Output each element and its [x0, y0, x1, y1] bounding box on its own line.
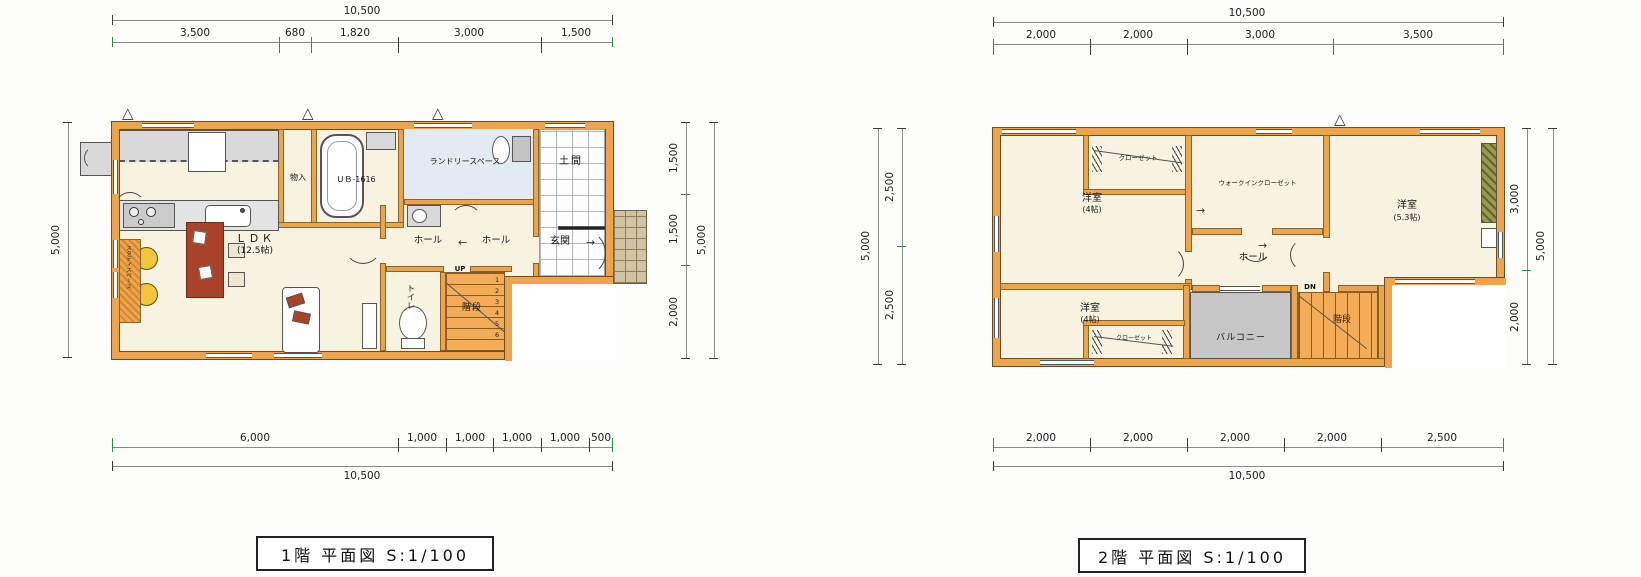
window: [113, 240, 118, 268]
dim-label: 2,000: [1114, 432, 1162, 444]
dim-tick: [112, 15, 113, 25]
balcony-floor: [1190, 292, 1291, 359]
dim-tick: [681, 265, 690, 266]
dim-tick: [1503, 461, 1504, 471]
dim-label: 10,500: [1180, 7, 1314, 19]
bedroom-nw-label: 洋室: [1062, 193, 1122, 204]
washbasin: [412, 209, 427, 223]
dim-tick: [681, 194, 690, 195]
closet-label: クローゼット: [1098, 155, 1178, 162]
dim-label: 10,500: [295, 5, 429, 17]
bedroom-e-size: (5.3帖): [1372, 214, 1442, 223]
dim-label: 10,500: [295, 470, 429, 482]
dim-label: 2,000: [1017, 432, 1065, 444]
place-setting: [198, 265, 213, 280]
dim-line: [112, 466, 613, 467]
wall-segment: [380, 263, 386, 351]
dim-tick: [993, 39, 994, 55]
dim-tick: [63, 357, 72, 358]
door-swing-arc: [1290, 238, 1324, 272]
dim-tick: [709, 358, 718, 359]
wall-segment: [533, 129, 539, 237]
wall-segment: [380, 205, 386, 239]
wall-segment: [1192, 228, 1242, 235]
dim-line: [1553, 128, 1554, 365]
chair: [228, 272, 245, 287]
floor2-notch: [1385, 278, 1506, 368]
laundry-label: ランドリースペース: [406, 158, 524, 167]
arrow-right-icon: →: [586, 237, 595, 248]
wall-segment: [398, 129, 404, 228]
roof-vent-icon: △: [432, 106, 444, 121]
dim-label: 1,500: [668, 204, 680, 254]
door-swing-arc: [344, 226, 382, 264]
window: [1420, 129, 1480, 134]
storage-label: 物入: [281, 174, 315, 183]
dim-tick: [993, 461, 994, 471]
dim-tick: [897, 246, 906, 247]
ldk-size-label: (12.5帖): [215, 247, 295, 257]
dim-label: 1,000: [446, 432, 494, 444]
arrow-right-icon: →: [1196, 205, 1205, 216]
dim-label: 5,000: [50, 215, 62, 265]
study-label: スタディスペース: [124, 245, 132, 289]
dim-label: 3,000: [1509, 174, 1521, 224]
kitchen-island: [188, 132, 226, 172]
window: [113, 160, 118, 194]
dim-tick: [681, 122, 690, 123]
dim-line: [686, 122, 687, 359]
dim-tick: [1522, 364, 1531, 365]
bath-counter: [366, 132, 396, 150]
stairs-label: 階段: [450, 304, 494, 314]
window: [1256, 129, 1292, 134]
dim-tick: [897, 128, 906, 129]
roof-vent-icon: △: [302, 106, 314, 121]
stairs-label: 階段: [1322, 316, 1362, 326]
dim-tick: [1381, 438, 1382, 452]
window: [1002, 129, 1076, 134]
floorplan-sheet: { "palette": { "wall": "#eda44f", "floor…: [0, 0, 1641, 577]
dim-label: 2,500: [884, 162, 896, 212]
closet-label: クローゼット: [1096, 336, 1172, 343]
dim-line: [714, 122, 715, 359]
step-number: 1: [495, 276, 499, 284]
floor1-title-text: 1階 平面図 S:1/100: [281, 542, 469, 566]
up-label: UP: [450, 266, 470, 274]
wall-segment: [1272, 228, 1323, 235]
faucet: [240, 208, 245, 213]
ldk-label: ＬＤＫ: [215, 233, 295, 245]
dim-tick: [681, 358, 690, 359]
dim-line: [112, 20, 613, 21]
arrow-left-icon: ←: [458, 237, 467, 248]
wall-segment: [470, 266, 512, 272]
dn-label: DN: [1300, 284, 1320, 292]
wall-segment: [386, 266, 444, 272]
dim-tick: [612, 15, 613, 25]
roof-vent-icon: △: [122, 106, 134, 121]
dim-tick: [709, 122, 718, 123]
dim-tick: [612, 461, 613, 471]
window-seat: [1481, 228, 1497, 248]
window: [1395, 279, 1475, 284]
step-number: 4: [495, 309, 499, 317]
window: [994, 298, 999, 338]
wic-label: ウォークインクローゼット: [1190, 180, 1325, 187]
dim-label: 2,500: [1399, 432, 1485, 444]
window: [206, 353, 252, 358]
step-number: 5: [495, 320, 499, 328]
wall-segment: [1083, 135, 1089, 195]
window: [994, 216, 999, 252]
hall-label: ホール: [1228, 253, 1278, 263]
bedroom-sw-size: (4帖): [1060, 316, 1120, 325]
floor2-title-text: 2階 平面図 S:1/100: [1098, 544, 1286, 568]
dim-label: 3,000: [1217, 29, 1303, 41]
dim-label: 2,000: [668, 287, 680, 337]
dim-line: [993, 466, 1504, 467]
dim-label: 10,500: [1180, 470, 1314, 482]
dim-tick: [897, 364, 906, 365]
dim-label: 2,500: [884, 280, 896, 330]
dim-tick: [1503, 17, 1504, 27]
dim-line: [112, 447, 613, 448]
wall-segment: [1192, 285, 1220, 292]
dim-tick: [279, 37, 280, 53]
dim-label: 1,000: [493, 432, 541, 444]
wall-segment: [440, 272, 446, 351]
dim-line: [68, 122, 69, 358]
dim-tick: [541, 37, 542, 53]
window: [274, 353, 322, 358]
dim-tick: [873, 128, 882, 129]
dim-tick: [993, 17, 994, 27]
window: [142, 123, 194, 128]
dim-tick: [311, 37, 312, 53]
dim-tick: [1548, 128, 1557, 129]
dim-tick: [1187, 39, 1188, 55]
dim-tick: [1090, 39, 1091, 55]
tv-board: [362, 303, 377, 349]
floor1-notch: [505, 277, 615, 361]
dim-label: 2,000: [1114, 29, 1162, 41]
bedroom-e-label: 洋室: [1372, 200, 1442, 211]
balcony-door: [1220, 286, 1260, 291]
dim-line: [993, 44, 1504, 45]
bedroom-sw-label: 洋室: [1060, 303, 1120, 314]
dim-tick: [398, 37, 399, 53]
hall-label: ホール: [402, 236, 454, 246]
dim-label: 1,500: [533, 27, 619, 39]
wall-segment: [1323, 272, 1330, 292]
toilet-label: トイレ: [404, 284, 416, 310]
dim-tick: [1187, 438, 1188, 452]
dim-tick: [1522, 270, 1531, 271]
dim-label: 2,000: [1017, 29, 1065, 41]
dim-tick: [1522, 128, 1531, 129]
dim-label: 3,000: [426, 27, 512, 39]
dim-tick: [1284, 438, 1285, 452]
door-swing-arc: [114, 192, 146, 224]
entrance-porch: [613, 210, 647, 284]
wall-segment: [1185, 135, 1192, 252]
window: [113, 272, 118, 298]
dim-label: 5,000: [860, 221, 872, 271]
dim-label: 500: [585, 432, 617, 444]
dim-label: 3,500: [152, 27, 238, 39]
window: [1040, 360, 1094, 365]
dim-tick: [993, 438, 994, 452]
bath-label: ＵＢ-1616: [316, 176, 396, 185]
bedroom-closet-hatch: [1481, 143, 1497, 223]
dim-tick: [112, 461, 113, 471]
wall-segment: [1291, 285, 1298, 359]
doma-label: 土間: [541, 156, 601, 167]
window: [414, 123, 472, 128]
dim-tick: [1548, 364, 1557, 365]
dim-label: 6,000: [210, 432, 300, 444]
wall-segment: [1000, 283, 1192, 290]
dim-tick: [112, 438, 113, 452]
dim-tick: [112, 37, 113, 47]
dim-tick: [63, 122, 72, 123]
floor2-title: 2階 平面図 S:1/100: [1078, 538, 1306, 573]
door-swing-arc: [450, 205, 482, 237]
bedroom-nw-size: (4帖): [1062, 206, 1122, 215]
door-swing-arc: [1148, 246, 1184, 282]
wall-segment: [1338, 285, 1378, 292]
dim-line: [993, 22, 1504, 23]
balcony-label: バルコニー: [1196, 334, 1286, 344]
window: [545, 123, 585, 128]
dim-label: 1,500: [668, 133, 680, 183]
entry-label: 玄関: [537, 236, 583, 247]
dim-line: [1527, 128, 1528, 365]
dim-tick: [1503, 39, 1504, 55]
place-setting: [192, 230, 207, 245]
dim-label: 2,000: [1308, 432, 1356, 444]
dim-label: 5,000: [696, 215, 708, 265]
dim-tick: [873, 364, 882, 365]
dim-line: [878, 128, 879, 365]
roof-vent-icon: △: [1334, 112, 1346, 127]
step-number: 2: [495, 287, 499, 295]
dim-label: 1,820: [331, 27, 379, 39]
toilet-bowl: [399, 306, 427, 340]
step-number: 6: [495, 331, 499, 339]
dim-label: 1,000: [541, 432, 589, 444]
step-number: 3: [495, 298, 499, 306]
arrow-right-icon: →: [1258, 240, 1267, 251]
dim-label: 2,000: [1509, 292, 1521, 342]
door-swing-arc: [84, 146, 108, 170]
burner: [146, 207, 156, 217]
dim-tick: [1090, 438, 1091, 452]
dim-line: [112, 42, 613, 43]
hall-label: ホール: [470, 236, 522, 246]
dim-label: 3,500: [1375, 29, 1461, 41]
dim-line: [993, 447, 1504, 448]
dim-label: 2,000: [1211, 432, 1259, 444]
toilet-tank: [401, 338, 425, 349]
floor1-title: 1階 平面図 S:1/100: [256, 536, 494, 571]
dim-label: 680: [271, 27, 319, 39]
dim-tick: [1333, 39, 1334, 55]
wall-segment: [1262, 285, 1291, 292]
dim-tick: [1503, 438, 1504, 452]
dim-label: 5,000: [1535, 221, 1547, 271]
window: [1498, 232, 1503, 258]
dim-label: 1,000: [398, 432, 446, 444]
